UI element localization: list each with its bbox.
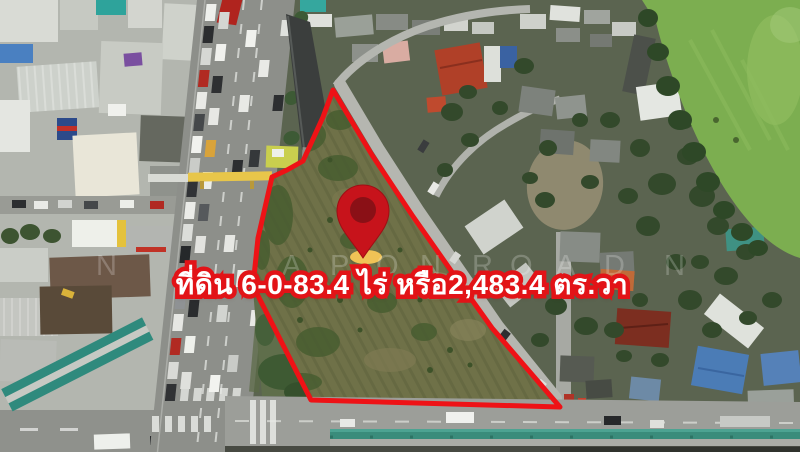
land-area-label: ที่ดิน 6-0-83.4 ไร่ หรือ2,483.4 ตร.วา [176, 263, 629, 307]
aerial-land-listing-photo: NAPONROADN ที่ดิน 6-0-83.4 ไร่ หรือ2,483… [0, 0, 800, 452]
aerial-scene [0, 0, 800, 452]
truck [446, 412, 474, 423]
zebra-crossing-bottom [250, 400, 276, 444]
